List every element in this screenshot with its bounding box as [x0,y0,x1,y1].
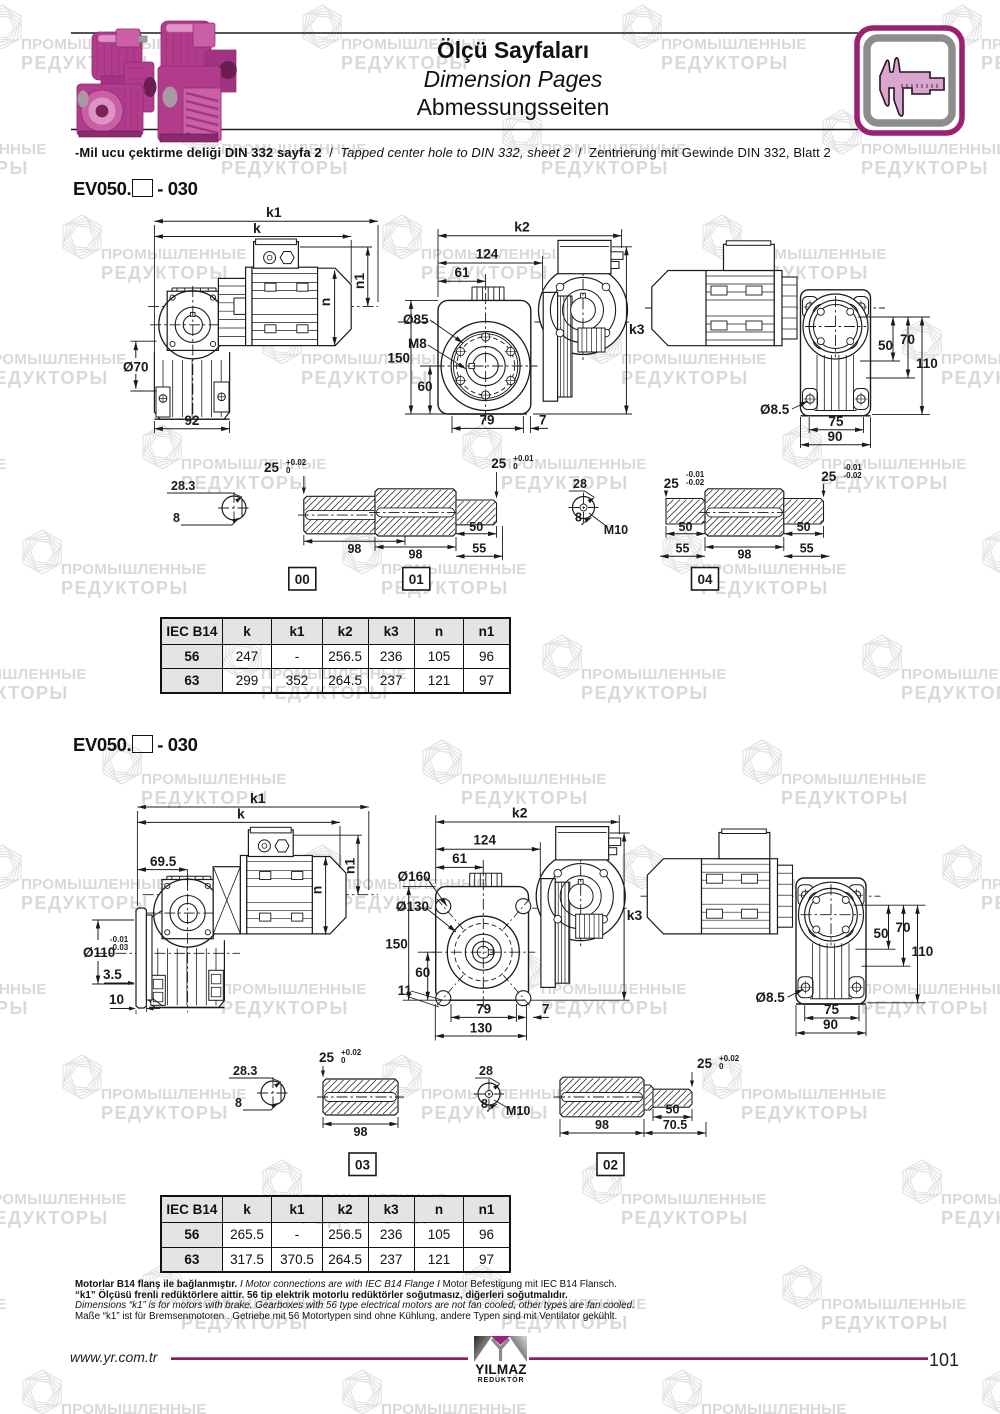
svg-text:55: 55 [800,541,814,555]
svg-text:-0.03: -0.03 [110,943,129,952]
svg-text:-0.02: -0.02 [844,471,863,480]
svg-text:98: 98 [595,1118,609,1132]
svg-text:n1: n1 [342,858,358,875]
svg-text:8: 8 [235,1096,242,1110]
svg-text:28: 28 [479,1064,493,1078]
svg-text:Ø85: Ø85 [403,312,429,327]
svg-text:n: n [317,298,333,307]
svg-text:0: 0 [286,466,291,475]
svg-text:-0.02: -0.02 [686,478,705,487]
svg-text:M8: M8 [408,336,427,351]
svg-text:110: 110 [916,356,938,371]
svg-text:75: 75 [828,414,844,429]
svg-text:01: 01 [409,572,425,587]
svg-text:150: 150 [385,937,408,952]
svg-text:3.5: 3.5 [103,967,122,982]
svg-text:50: 50 [797,520,811,534]
svg-text:79: 79 [479,413,494,428]
svg-text:28.3: 28.3 [233,1064,257,1078]
svg-text:10: 10 [109,992,124,1007]
svg-text:28: 28 [573,477,587,491]
svg-text:k3: k3 [629,321,645,337]
svg-text:50: 50 [878,338,893,353]
svg-text:8: 8 [173,511,180,525]
svg-text:Ø8.5: Ø8.5 [760,402,790,417]
svg-text:50: 50 [666,1103,680,1117]
svg-text:55: 55 [472,541,486,555]
svg-text:98: 98 [409,548,423,562]
svg-text:k2: k2 [512,805,528,821]
svg-text:M10: M10 [604,523,628,537]
svg-text:7: 7 [539,413,547,428]
svg-text:79: 79 [476,1002,491,1017]
svg-text:50: 50 [679,520,693,534]
svg-text:28.3: 28.3 [171,479,195,493]
svg-text:124: 124 [473,833,496,848]
svg-text:k1: k1 [250,790,266,806]
svg-text:Ø160: Ø160 [398,869,431,884]
svg-text:98: 98 [347,542,361,556]
svg-text:11: 11 [398,983,413,998]
svg-text:50: 50 [469,520,483,534]
svg-text:Ø130: Ø130 [396,899,429,914]
svg-text:03: 03 [355,1158,371,1173]
svg-text:150: 150 [388,351,411,366]
svg-text:0: 0 [341,1056,346,1065]
svg-text:M10: M10 [506,1104,530,1118]
svg-text:55: 55 [676,541,690,555]
svg-text:60: 60 [415,965,430,980]
svg-text:7: 7 [542,1002,550,1017]
svg-text:98: 98 [354,1125,368,1139]
svg-text:0: 0 [513,462,518,471]
svg-text:8: 8 [575,511,582,525]
svg-text:Ø70: Ø70 [123,359,149,374]
svg-text:04: 04 [697,572,713,587]
svg-text:61: 61 [454,265,470,280]
svg-text:02: 02 [603,1158,618,1173]
svg-text:25: 25 [264,460,280,475]
svg-text:60: 60 [418,379,433,394]
svg-text:00: 00 [295,572,310,587]
svg-text:k: k [237,806,245,822]
svg-text:k3: k3 [627,907,643,923]
svg-text:61: 61 [452,851,468,866]
svg-text:130: 130 [470,1021,493,1036]
svg-text:70.5: 70.5 [663,1118,687,1132]
svg-text:k: k [253,220,261,236]
svg-text:n: n [309,886,325,895]
svg-text:25: 25 [319,1050,335,1065]
svg-text:25: 25 [491,456,507,471]
svg-text:70: 70 [900,332,915,347]
svg-text:98: 98 [737,548,751,562]
svg-text:8: 8 [481,1097,488,1111]
svg-text:25: 25 [697,1056,713,1071]
svg-text:n1: n1 [351,273,367,290]
svg-text:69.5: 69.5 [150,854,177,869]
svg-text:k1: k1 [266,204,282,220]
svg-text:0: 0 [719,1062,724,1071]
svg-text:90: 90 [827,429,842,444]
svg-text:k2: k2 [514,219,530,235]
svg-text:124: 124 [476,247,499,262]
svg-text:92: 92 [184,413,199,428]
svg-text:25: 25 [664,476,680,491]
svg-text:25: 25 [821,469,837,484]
